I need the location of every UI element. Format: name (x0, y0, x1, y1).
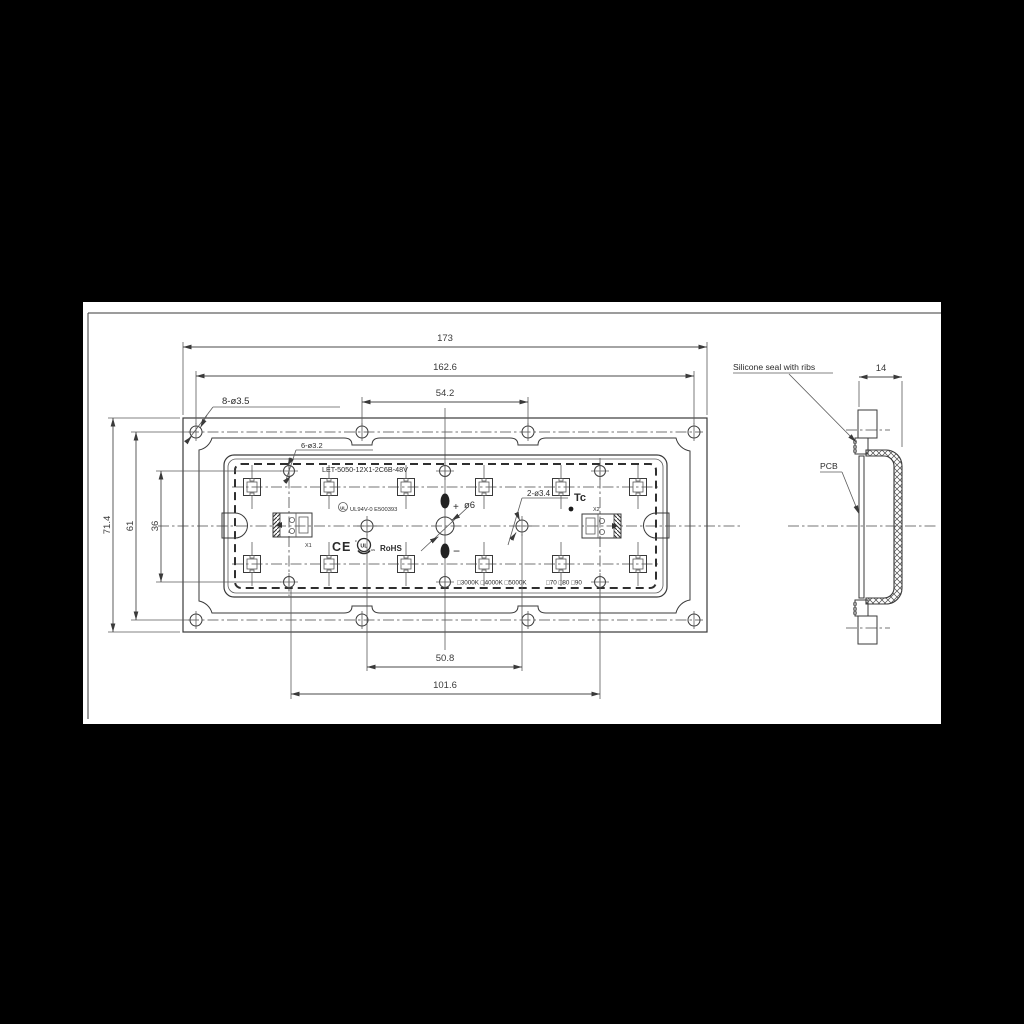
dim-50-8-value: 50.8 (436, 653, 455, 664)
minus-label: − (453, 544, 460, 558)
solder-pad-negative (441, 544, 450, 559)
x1-label: X1 (305, 543, 312, 549)
cri-options: □70 □80 □90 (546, 580, 582, 587)
callout-6-holes-label: 6-ø3.2 (301, 441, 323, 450)
tc-label: Tc (574, 492, 586, 504)
callout-2-holes-label: 2-ø3.4 (527, 489, 551, 498)
dim-54-2-value: 54.2 (436, 388, 455, 399)
dim-71-4-value: 71.4 (102, 516, 113, 535)
svg-text:us: us (371, 548, 375, 552)
dim-101-6-value: 101.6 (433, 680, 457, 691)
pcb-label: PCB (820, 461, 838, 471)
part-number: LET-5050-12X1-2C6B-48V (322, 465, 408, 474)
x2-label: X2 (593, 507, 600, 513)
ul-file-number: UL94V-0 E500393 (350, 507, 397, 513)
ul-logo-text: UL (340, 506, 346, 511)
seal-label: Silicone seal with ribs (733, 362, 815, 372)
plus-label: + (453, 502, 459, 513)
callout-8-holes-label: 8-ø3.5 (222, 396, 249, 407)
dim-14-value: 14 (876, 363, 887, 374)
tc-dot (569, 507, 574, 512)
dim-61-value: 61 (125, 521, 136, 532)
rohs-mark: RoHS (380, 544, 402, 553)
dim-173-value: 173 (437, 333, 453, 344)
cct-options: □3000K □4000K □5000K (457, 580, 527, 587)
dia6-label: ø6 (464, 500, 475, 511)
svg-text:c: c (355, 539, 357, 543)
solder-pad-positive (441, 494, 450, 509)
technical-drawing: + ø6 − X1 X2 Tc LET-5050-12X1-2C6B-48V U… (0, 0, 1024, 1024)
options-row: □3000K □4000K □5000K □70 □80 □90 (457, 580, 582, 587)
ce-mark: CE (332, 540, 351, 554)
dim-36-value: 36 (150, 521, 161, 532)
dim-162-6-value: 162.6 (433, 362, 457, 373)
